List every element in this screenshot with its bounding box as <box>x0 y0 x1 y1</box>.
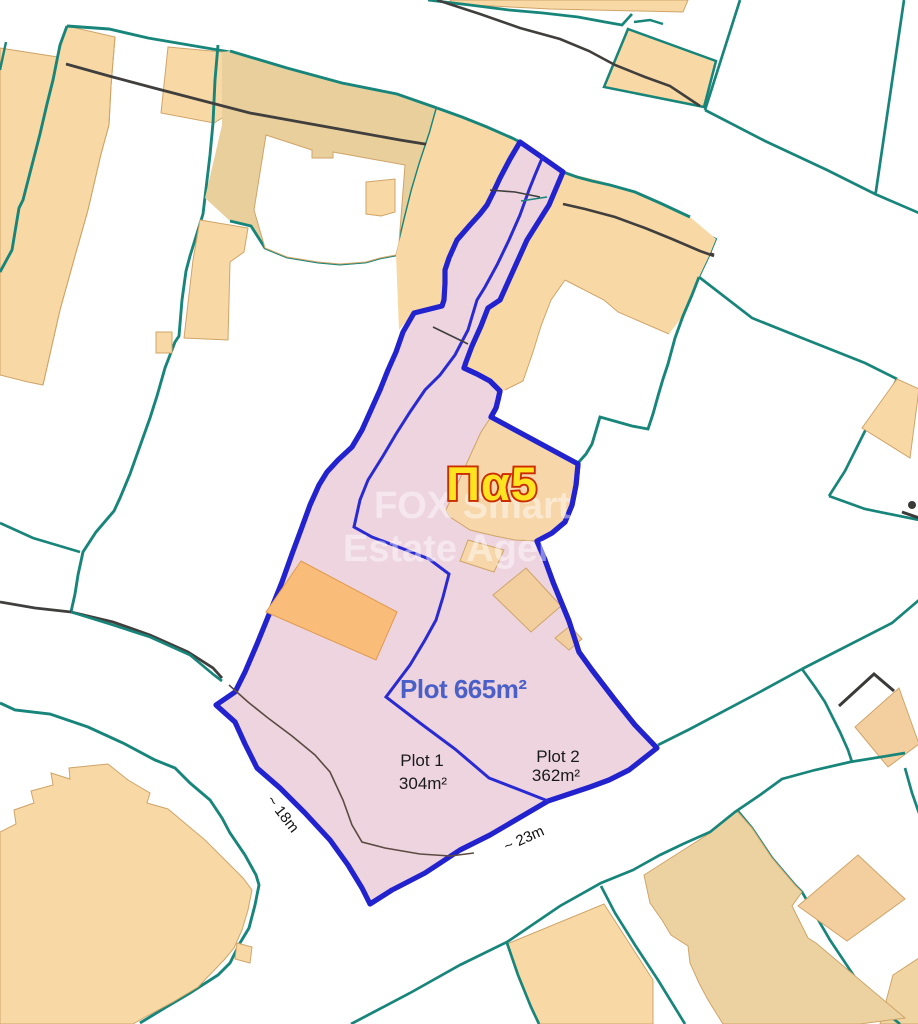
svg-text:Πα5: Πα5 <box>446 457 538 510</box>
svg-text:304m²: 304m² <box>399 774 448 793</box>
svg-text:Plot 2: Plot 2 <box>536 747 579 766</box>
svg-text:Estate Agenc: Estate Agenc <box>343 528 582 570</box>
svg-text:Plot 1: Plot 1 <box>400 751 443 770</box>
svg-text:Plot 665m²: Plot 665m² <box>400 674 527 704</box>
svg-text:362m²: 362m² <box>532 766 581 785</box>
